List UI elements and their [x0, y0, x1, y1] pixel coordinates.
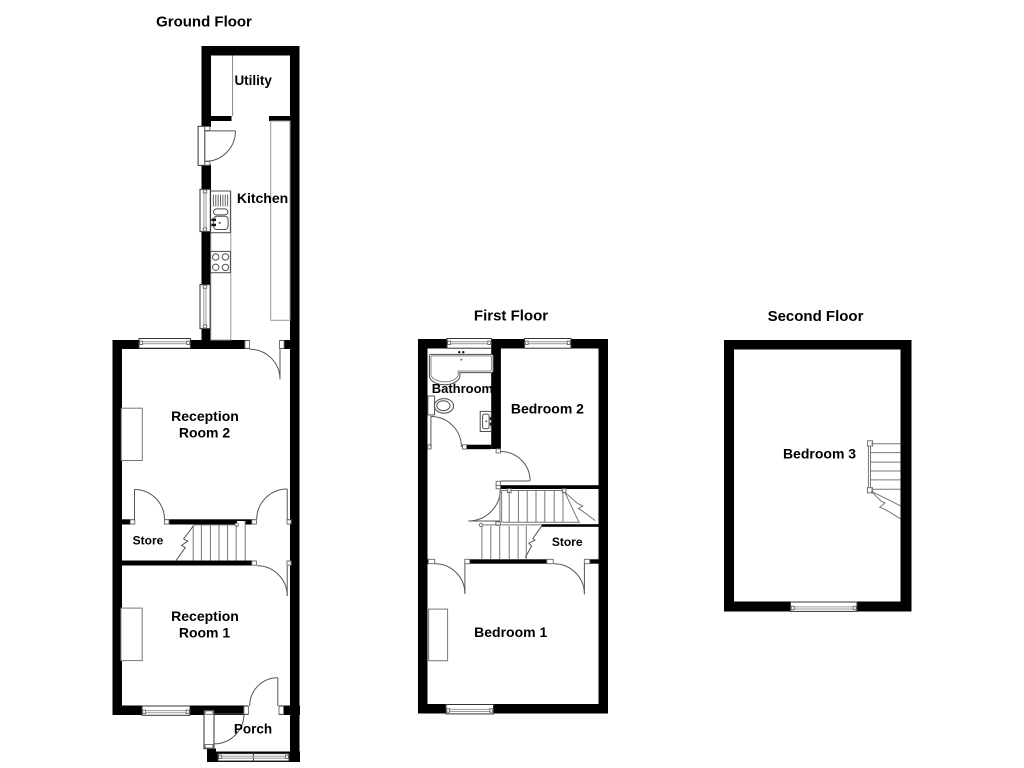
svg-text:First Floor: First Floor — [474, 307, 548, 324]
svg-text:Store: Store — [133, 534, 164, 548]
svg-text:Ground Floor: Ground Floor — [156, 13, 252, 30]
svg-text:Second Floor: Second Floor — [768, 308, 864, 325]
svg-text:Room 2: Room 2 — [179, 424, 231, 440]
svg-text:Room 1: Room 1 — [179, 624, 231, 640]
svg-text:Bedroom 2: Bedroom 2 — [511, 401, 584, 417]
svg-text:Kitchen: Kitchen — [237, 190, 288, 206]
svg-text:Bedroom 3: Bedroom 3 — [783, 446, 856, 462]
svg-text:Bedroom 1: Bedroom 1 — [474, 624, 547, 640]
svg-text:Reception: Reception — [171, 408, 239, 424]
svg-text:Reception: Reception — [171, 608, 239, 624]
svg-text:Porch: Porch — [234, 721, 272, 736]
svg-text:Utility: Utility — [234, 73, 272, 88]
svg-text:Bathroom: Bathroom — [432, 381, 493, 396]
svg-text:Store: Store — [552, 535, 583, 549]
